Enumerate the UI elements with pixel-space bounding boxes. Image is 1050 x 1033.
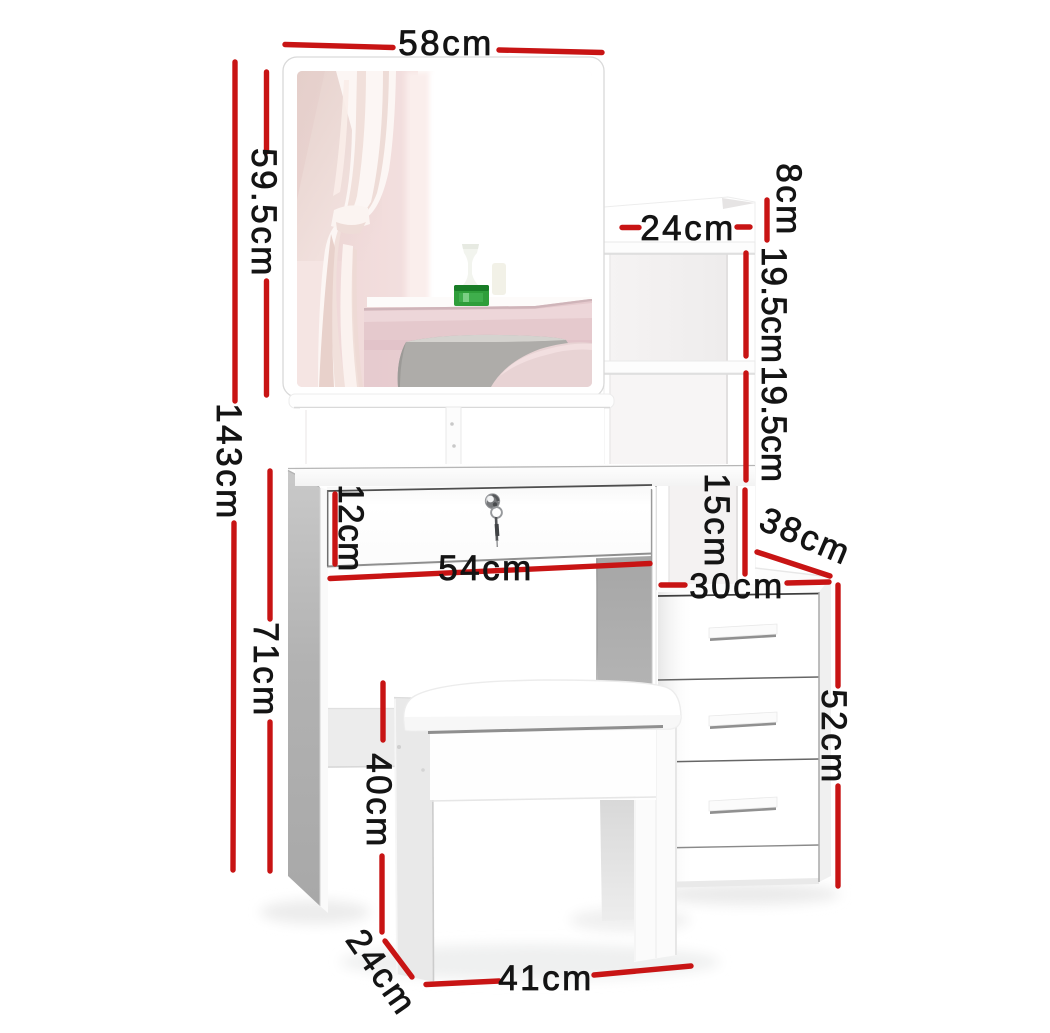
svg-text:143cm: 143cm (209, 403, 248, 521)
svg-text:58cm: 58cm (398, 24, 494, 63)
svg-text:8cm: 8cm (769, 163, 808, 237)
svg-text:59.5cm: 59.5cm (244, 148, 283, 278)
svg-text:15cm: 15cm (697, 473, 736, 569)
svg-text:12cm: 12cm (331, 484, 370, 572)
svg-text:19.5cm: 19.5cm (754, 247, 793, 364)
svg-text:40cm: 40cm (359, 753, 398, 849)
svg-text:71cm: 71cm (246, 622, 285, 718)
svg-text:19.5cm: 19.5cm (754, 366, 793, 483)
svg-text:54cm: 54cm (438, 549, 534, 588)
svg-text:24cm: 24cm (640, 209, 736, 248)
svg-text:30cm: 30cm (689, 567, 785, 606)
svg-text:41cm: 41cm (498, 959, 594, 998)
svg-text:52cm: 52cm (814, 689, 853, 785)
